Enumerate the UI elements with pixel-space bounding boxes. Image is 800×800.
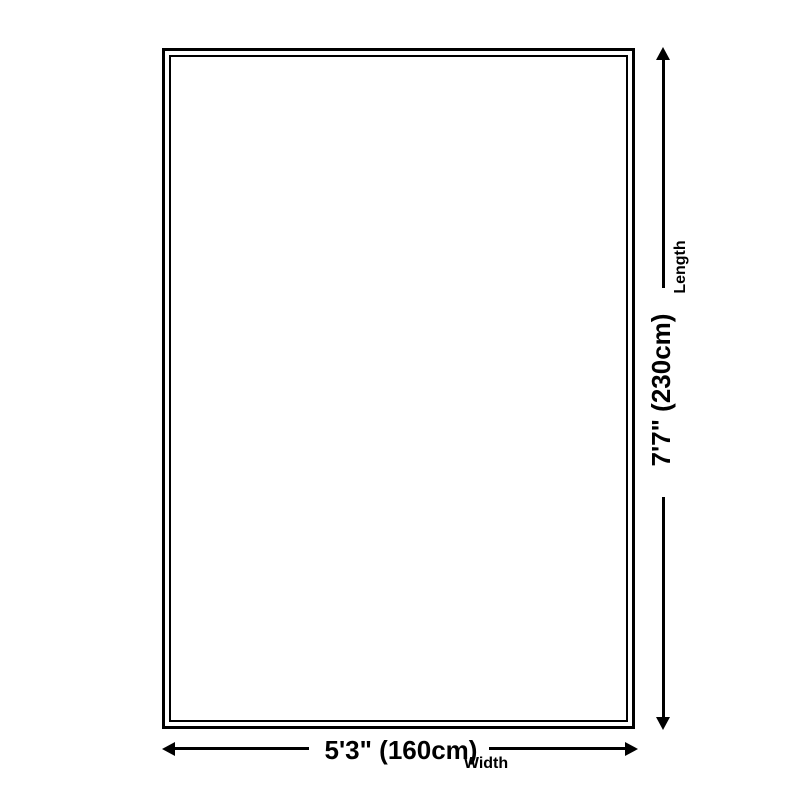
width-dimension-value: 5'3" (160cm) (325, 737, 478, 763)
width-label: Width (464, 756, 508, 772)
rug-size-diagram: 7'7" (230cm) Length 5'3" (160cm) Width (0, 0, 800, 800)
arrowhead-right-icon (625, 742, 638, 756)
arrowhead-left-icon (162, 742, 175, 756)
rug-outline (162, 48, 635, 729)
length-label: Length (673, 240, 689, 293)
arrowhead-up-icon (656, 47, 670, 60)
width-arrow-line-left (173, 747, 309, 750)
length-arrow-line-upper (662, 57, 665, 288)
width-arrow-line-right (489, 747, 626, 750)
length-dimension-value: 7'7" (230cm) (648, 314, 674, 467)
length-arrow-line-lower (662, 497, 665, 718)
arrowhead-down-icon (656, 717, 670, 730)
